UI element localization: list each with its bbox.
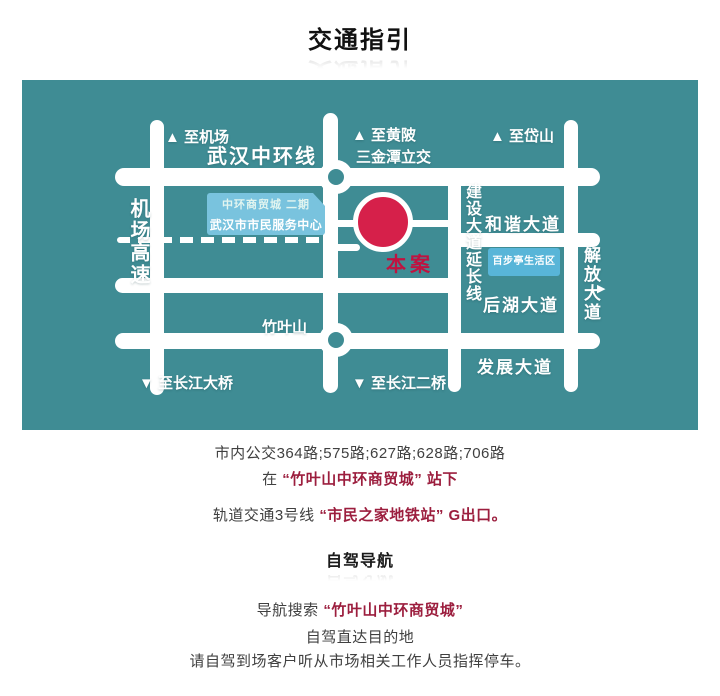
baibuting-info-box: 百步亭生活区 (488, 248, 560, 276)
metro-line: 轨道交通3号线 “市民之家地铁站” G出口。 (0, 506, 720, 526)
bus-stop-highlight: “竹叶山中环商贸城” 站下 (282, 471, 458, 488)
citizen-service-center-label: 武汉市市民服务中心 (207, 216, 325, 233)
trade-city-info-box: 中环商贸城 二期 武汉市市民服务中心 (207, 193, 325, 235)
baibuting-label: 百步亭生活区 (488, 248, 560, 276)
parking-notice-text: 请自驾到场客户听从市场相关工作人员指挥停车。 (189, 653, 530, 670)
sanjintan-roundabout (319, 160, 353, 194)
bus-stop-prefix: 在 (262, 471, 278, 488)
road-wuhan-ring (115, 168, 600, 186)
site-marker-label: 本案 (386, 248, 434, 277)
trade-city-label: 中环商贸城 二期 (207, 196, 325, 212)
page-title: 交通指引 (0, 26, 720, 56)
label-to-daishan: ▲ 至岱山 (490, 125, 554, 146)
jiefang-direction-arrow-icon: ▶ (597, 282, 605, 295)
label-zhuyeshan: 竹叶山 (262, 316, 307, 337)
nav-search-highlight: “竹叶山中环商贸城” (323, 602, 463, 619)
site-marker-icon (353, 192, 413, 252)
parking-notice-line: 请自驾到场客户听从市场相关工作人员指挥停车。 (0, 652, 720, 672)
label-fazhan-avenue: 发展大道 (477, 353, 553, 378)
page-title-reflection: 交通指引 (0, 55, 720, 71)
traffic-map: 中环商贸城 二期 武汉市市民服务中心 百步亭生活区 本案 ▲ 至机场 武汉中环线… (22, 80, 698, 430)
direct-arrival-line: 自驾直达目的地 (0, 628, 720, 648)
bus-routes-line: 市内公交364路;575路;627路;628路;706路 (0, 444, 720, 464)
nav-search-line: 导航搜索 “竹叶山中环商贸城” (0, 601, 720, 621)
metro-prefix: 轨道交通3号线 (213, 507, 315, 524)
bus-routes-text: 市内公交364路;575路;627路;628路;706路 (215, 445, 506, 462)
label-sanjintan: 三金潭立交 (356, 146, 431, 167)
road-jiefang-avenue (564, 120, 578, 392)
label-to-yangtze-bridge: ▼ 至长江大桥 (139, 372, 233, 393)
road-side-stub (330, 244, 360, 251)
label-houhu-avenue: 后湖大道 (483, 291, 559, 316)
driving-heading-reflection: 自驾导航 (0, 570, 720, 583)
road-houhu-avenue (115, 278, 461, 293)
direct-arrival-text: 自驾直达目的地 (306, 629, 415, 646)
bus-stop-line: 在 “竹叶山中环商贸城” 站下 (0, 470, 720, 490)
label-jianshe-extension: 建设大道延长线 (459, 183, 483, 302)
label-to-huangpi: ▲ 至黄陂 (352, 124, 416, 145)
road-fazhan-avenue (115, 333, 600, 349)
label-wuhan-ring: 武汉中环线 (207, 140, 317, 169)
label-hexie-avenue: 和谐大道 (485, 210, 561, 235)
label-airport-expressway: 机场高速 (124, 198, 153, 286)
label-to-second-bridge: ▼ 至长江二桥 (352, 372, 446, 393)
nav-search-prefix: 导航搜索 (257, 602, 319, 619)
metro-highlight: “市民之家地铁站” G出口。 (319, 507, 507, 524)
zhuyeshan-roundabout (319, 323, 353, 357)
